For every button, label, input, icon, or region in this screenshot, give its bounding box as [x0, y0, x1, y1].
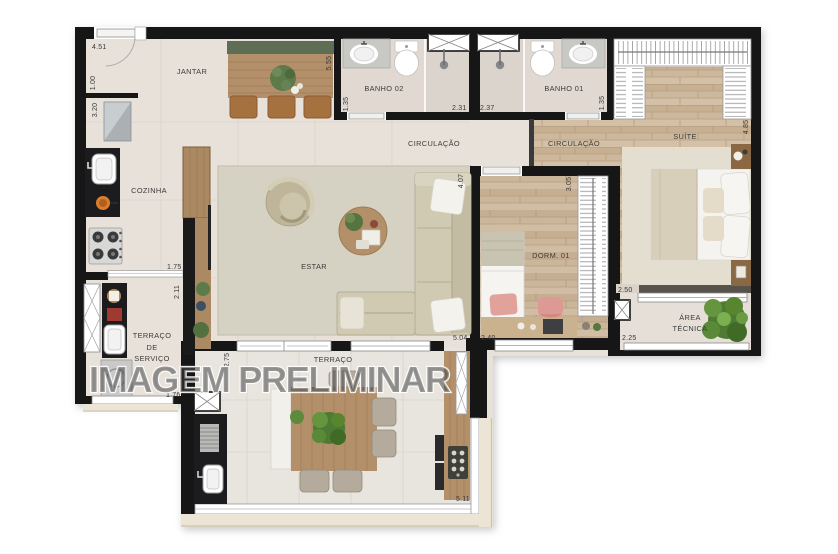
svg-text:CIRCULAÇÃO: CIRCULAÇÃO [548, 139, 600, 148]
svg-text:DORM. 01: DORM. 01 [532, 251, 570, 260]
svg-text:3.20: 3.20 [92, 103, 99, 117]
svg-text:SUÍTE: SUÍTE [673, 132, 697, 141]
svg-text:1.35: 1.35 [343, 97, 350, 111]
svg-text:IMAGEM PRELIMINAR: IMAGEM PRELIMINAR [89, 359, 452, 400]
svg-text:5.55: 5.55 [326, 56, 333, 70]
svg-text:1.75: 1.75 [167, 264, 181, 271]
svg-text:4.85: 4.85 [743, 120, 750, 134]
svg-text:ESTAR: ESTAR [301, 262, 327, 271]
svg-text:4.07: 4.07 [458, 174, 465, 188]
svg-text:1.35: 1.35 [599, 96, 606, 110]
svg-text:3.05: 3.05 [566, 177, 573, 191]
svg-text:TÉCNICA: TÉCNICA [673, 324, 708, 333]
svg-text:2.37: 2.37 [480, 105, 494, 112]
svg-text:2.40: 2.40 [481, 335, 495, 342]
svg-text:2.50: 2.50 [618, 287, 632, 294]
svg-text:1.00: 1.00 [90, 76, 97, 90]
svg-text:COZINHA: COZINHA [131, 186, 167, 195]
svg-text:JANTAR: JANTAR [177, 67, 207, 76]
svg-text:BANHO 01: BANHO 01 [544, 84, 583, 93]
svg-text:DE: DE [147, 343, 158, 352]
svg-text:5.11: 5.11 [456, 496, 470, 503]
svg-text:BANHO 02: BANHO 02 [364, 84, 403, 93]
svg-text:CIRCULAÇÃO: CIRCULAÇÃO [408, 139, 460, 148]
svg-text:2.31: 2.31 [452, 105, 466, 112]
svg-text:5.04: 5.04 [453, 335, 467, 342]
svg-text:ÁREA: ÁREA [679, 313, 701, 322]
svg-text:2.25: 2.25 [622, 335, 636, 342]
svg-text:2.11: 2.11 [174, 285, 181, 299]
svg-text:TERRAÇO: TERRAÇO [133, 331, 172, 340]
svg-text:4.51: 4.51 [92, 44, 106, 51]
